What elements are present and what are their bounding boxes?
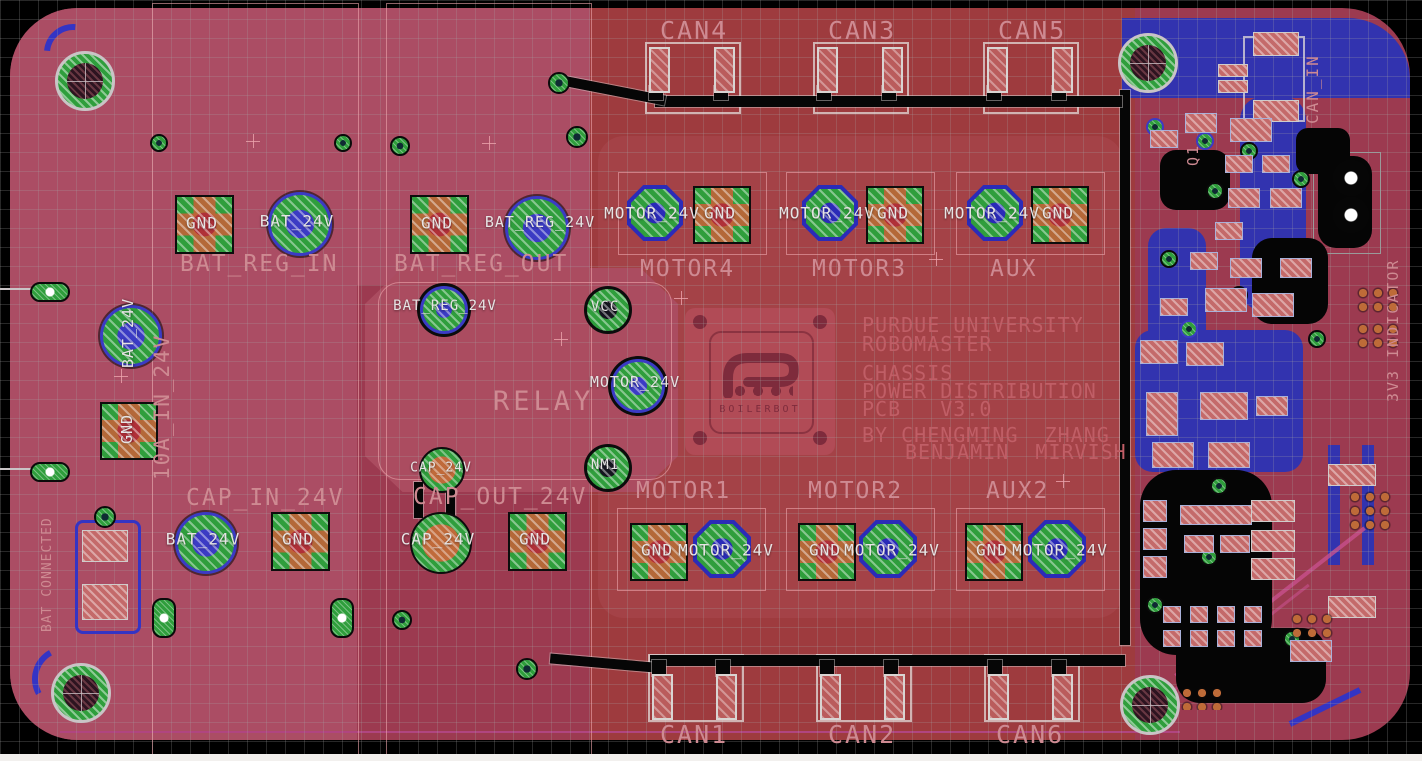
smd-pad[interactable] <box>1244 606 1262 623</box>
motor3-label[interactable]: MOTOR3 <box>812 256 907 282</box>
via[interactable] <box>1206 182 1224 200</box>
motor4-label[interactable]: MOTOR4 <box>640 256 735 282</box>
pad-label: VCC <box>591 299 619 315</box>
via[interactable] <box>1308 330 1326 348</box>
smd-pad[interactable] <box>1251 500 1295 522</box>
logo-hole <box>693 431 707 445</box>
capin-label[interactable]: CAP_IN_24V <box>186 485 344 511</box>
led-pad <box>82 530 128 562</box>
pad-label: CAP_24V <box>401 530 475 549</box>
canin-pad[interactable] <box>1218 80 1248 93</box>
logo-hole <box>693 315 707 329</box>
crosshair-marker <box>482 136 496 150</box>
pad-label: MOTOR_24V <box>844 541 940 560</box>
can3-label[interactable]: CAN3 <box>828 16 896 45</box>
via[interactable] <box>1292 170 1310 188</box>
boilerbot-logo-plate[interactable]: BOILERBOT <box>685 308 835 455</box>
smd-pad[interactable] <box>1200 392 1248 420</box>
pad-label: GND <box>641 541 673 560</box>
aux2-label[interactable]: AUX2 <box>986 478 1049 504</box>
q1-label[interactable]: Q1 <box>1184 126 1202 166</box>
smd-pad[interactable] <box>1270 188 1302 208</box>
pad-label: MOTOR_24V <box>678 541 774 560</box>
smd-pad[interactable] <box>1280 258 1312 278</box>
window-edge <box>0 754 1422 761</box>
can4-pad[interactable] <box>649 47 670 93</box>
canin-label[interactable]: CAN_IN <box>1303 36 1322 124</box>
batregin-label[interactable]: BAT_REG_IN <box>180 251 338 277</box>
smd-pad[interactable] <box>1186 342 1224 366</box>
copper-dot-grid <box>1348 490 1393 532</box>
mounting-hole[interactable] <box>1118 33 1178 93</box>
smd-pad[interactable] <box>1190 252 1218 270</box>
mounting-hole[interactable] <box>55 51 115 111</box>
can4-pad[interactable] <box>714 47 735 93</box>
can3-pad[interactable] <box>817 47 838 93</box>
smd-pad[interactable] <box>1262 155 1290 173</box>
can3-pad[interactable] <box>882 47 903 93</box>
pad-label: GND <box>282 530 314 549</box>
can2-label[interactable]: CAN2 <box>828 720 896 749</box>
can5-label[interactable]: CAN5 <box>998 16 1066 45</box>
pad-label: BAT_24V <box>119 298 137 368</box>
smd-pad[interactable] <box>1328 464 1376 486</box>
pad-label: BAT_REG_24V <box>485 213 595 231</box>
pad-label: MOTOR_24V <box>779 204 875 223</box>
jack-hole[interactable] <box>1333 197 1369 233</box>
crosshair-marker <box>246 134 260 148</box>
via[interactable] <box>1180 320 1198 338</box>
via[interactable] <box>152 598 176 638</box>
title-line[interactable]: PCB V3.0 <box>862 397 992 421</box>
smd-pad[interactable] <box>1163 606 1181 623</box>
via[interactable] <box>566 126 588 148</box>
pad-label: NM1 <box>591 457 619 473</box>
smd-pad[interactable] <box>1180 505 1252 525</box>
via[interactable] <box>94 506 116 528</box>
smd-pad[interactable] <box>1150 130 1178 148</box>
zone-outline-left <box>152 3 359 756</box>
via[interactable] <box>150 134 168 152</box>
smd-pad[interactable] <box>1328 596 1376 618</box>
smd-pad[interactable] <box>1252 293 1294 317</box>
copper-dot-grid <box>1290 612 1335 640</box>
via[interactable] <box>548 72 570 94</box>
logo-wordmark: BOILERBOT <box>685 404 835 415</box>
pad-label: BAT_24V <box>260 212 334 231</box>
smd-pad[interactable] <box>1290 640 1332 662</box>
mounting-hole[interactable] <box>51 663 111 723</box>
pcb-editor-canvas[interactable]: CAN4 CAN3 CAN5 CAN1 CAN2 CAN6 MOTOR_24V … <box>0 0 1422 761</box>
pad-label: GND <box>519 530 551 549</box>
smd-pad[interactable] <box>1217 606 1235 623</box>
crosshair-marker <box>674 291 688 305</box>
via[interactable] <box>1210 477 1228 495</box>
logo-hole <box>813 431 827 445</box>
mounting-hole[interactable] <box>1120 675 1180 735</box>
can1-pad[interactable] <box>716 674 737 720</box>
power-trace-vertical[interactable] <box>1120 90 1130 645</box>
pad-label: GND <box>186 214 218 233</box>
smd-pad[interactable] <box>1143 500 1167 522</box>
canin-pad[interactable] <box>1218 64 1248 77</box>
smd-pad[interactable] <box>1228 188 1260 208</box>
smd-pad[interactable] <box>1251 558 1295 580</box>
copper-dot-grid <box>1180 686 1225 710</box>
pad-label: MOTOR_24V <box>1012 541 1108 560</box>
pad-label: MOTOR_24V <box>604 204 700 223</box>
aux-label[interactable]: AUX <box>990 256 1038 282</box>
pad-label: GND <box>976 541 1008 560</box>
via[interactable] <box>1160 250 1178 268</box>
via[interactable] <box>334 134 352 152</box>
smd-pad[interactable] <box>1163 630 1181 647</box>
smd-pad[interactable] <box>1217 630 1235 647</box>
pad-label: BAT_REG_24V <box>393 298 497 314</box>
pad-label: GND <box>704 204 736 223</box>
crosshair-marker <box>554 332 568 346</box>
can6-pad[interactable] <box>1052 674 1073 720</box>
pad-label: MOTOR_24V <box>590 373 680 391</box>
canin-pad[interactable] <box>1253 32 1299 56</box>
smd-pad[interactable] <box>1205 288 1247 312</box>
capout-label[interactable]: CAP_OUT_24V <box>413 484 587 510</box>
title-line[interactable]: ROBOMASTER <box>862 332 992 356</box>
via[interactable] <box>516 658 538 680</box>
crosshair-marker <box>1056 474 1070 488</box>
pad-label: MOTOR_24V <box>944 204 1040 223</box>
smd-pad[interactable] <box>1244 630 1262 647</box>
can6-label[interactable]: CAN6 <box>996 720 1064 749</box>
smd-pad[interactable] <box>1190 606 1208 623</box>
can5-pad[interactable] <box>1052 47 1073 93</box>
motor1-label[interactable]: MOTOR1 <box>636 478 731 504</box>
smd-pad[interactable] <box>1152 442 1194 468</box>
wire-pad[interactable] <box>30 462 70 482</box>
can6-pad[interactable] <box>988 674 1009 720</box>
title-line[interactable]: BENJAMIN MIRVISH <box>905 440 1127 464</box>
smd-pad[interactable] <box>1190 630 1208 647</box>
can4-label[interactable]: CAN4 <box>660 16 728 45</box>
can2-pad[interactable] <box>884 674 905 720</box>
can1-pad[interactable] <box>652 674 673 720</box>
batconnected-label[interactable]: BAT CONNECTED <box>40 534 55 632</box>
10a-label[interactable]: 10A_IN_24V <box>150 300 174 480</box>
can1-label[interactable]: CAN1 <box>660 720 728 749</box>
smd-pad[interactable] <box>1184 535 1214 553</box>
jack-hole[interactable] <box>1333 160 1369 196</box>
via[interactable] <box>390 136 410 156</box>
via[interactable] <box>330 598 354 638</box>
batregout-label[interactable]: BAT_REG_OUT <box>394 251 568 277</box>
relay-label[interactable]: RELAY <box>493 386 594 417</box>
logo-dots <box>735 386 793 396</box>
led-pad <box>82 584 128 620</box>
pad-label: GND <box>1042 204 1074 223</box>
logo-hole <box>813 315 827 329</box>
pad-label: GND <box>877 204 909 223</box>
smd-pad[interactable] <box>1140 340 1178 364</box>
pad-label: CAP_24V <box>410 461 472 476</box>
pad-label: GND <box>421 214 453 233</box>
pad-label: GND <box>118 414 136 444</box>
smd-pad[interactable] <box>1220 535 1250 553</box>
smd-pad[interactable] <box>1143 528 1167 550</box>
smd-pad[interactable] <box>1225 155 1253 173</box>
motor2-label[interactable]: MOTOR2 <box>808 478 903 504</box>
via[interactable] <box>392 610 412 630</box>
smd-pad[interactable] <box>1251 530 1295 552</box>
wire-pad[interactable] <box>30 282 70 302</box>
smd-pad[interactable] <box>1215 222 1243 240</box>
can5-pad[interactable] <box>987 47 1008 93</box>
smd-pad[interactable] <box>1230 258 1262 278</box>
crosshair-marker <box>114 369 128 383</box>
smd-pad[interactable] <box>1230 118 1272 142</box>
smd-pad[interactable] <box>1256 396 1288 416</box>
via[interactable] <box>1146 596 1164 614</box>
crosshair-marker <box>929 252 943 266</box>
smd-pad[interactable] <box>1146 392 1178 436</box>
smd-pad[interactable] <box>1208 442 1250 468</box>
pad-label: BAT_24V <box>166 530 240 549</box>
smd-pad[interactable] <box>1160 298 1188 316</box>
pad-label: GND <box>809 541 841 560</box>
3v3-indicator-label[interactable]: 3V3 INDICATOR <box>1384 242 1402 402</box>
smd-pad[interactable] <box>1143 556 1167 578</box>
can2-pad[interactable] <box>820 674 841 720</box>
